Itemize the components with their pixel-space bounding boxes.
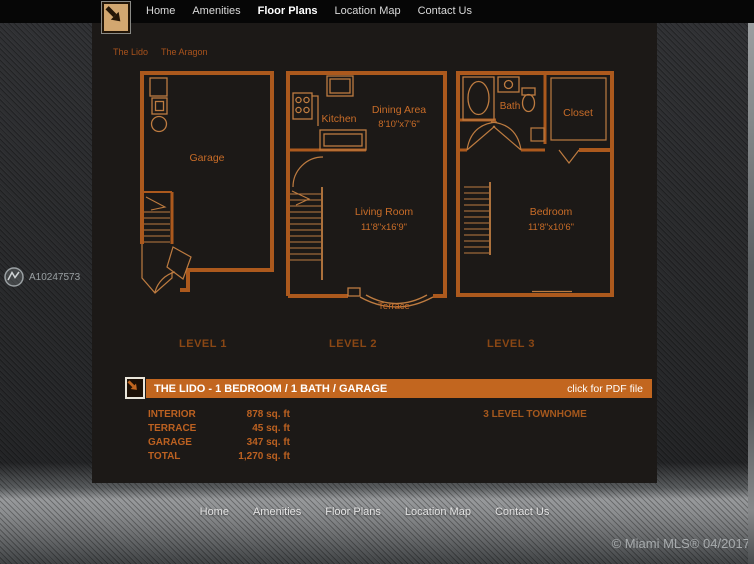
table-row: GARAGE 347 sq. ft bbox=[148, 435, 290, 449]
entry-door-icon bbox=[142, 244, 191, 293]
footer-nav-contact-us[interactable]: Contact Us bbox=[495, 506, 549, 518]
diagonal-arrow-logo-icon bbox=[104, 4, 124, 27]
top-navigation: Home Amenities Floor Plans Location Map … bbox=[146, 0, 472, 23]
garage-fixtures-icon bbox=[150, 78, 167, 132]
mls-watermark: A10247573 bbox=[3, 266, 80, 288]
top-nav-amenities[interactable]: Amenities bbox=[192, 0, 240, 23]
level3-caption: LEVEL 3 bbox=[478, 338, 544, 350]
stairs-level1-icon bbox=[144, 197, 170, 242]
mls-globe-icon bbox=[3, 266, 25, 288]
closet-room-label: Closet bbox=[563, 107, 593, 119]
floorplan-level1: Garage bbox=[125, 66, 285, 306]
table-row: TERRACE 45 sq. ft bbox=[148, 421, 290, 435]
subnav-the-lido[interactable]: The Lido bbox=[113, 47, 148, 57]
floorplan-level2: Kitchen Dining Area 8'10"x7'6" Living Ro… bbox=[281, 66, 451, 321]
hall-door-swings-icon bbox=[467, 122, 544, 150]
stat-value: 45 sq. ft bbox=[223, 423, 290, 434]
unit-title: THE LIDO - 1 BEDROOM / 1 BATH / GARAGE bbox=[154, 383, 387, 395]
door-arc-icon bbox=[293, 157, 323, 187]
living-dims-label: 11'8"x16'9" bbox=[361, 222, 407, 233]
stat-value: 347 sq. ft bbox=[223, 437, 290, 448]
stat-value: 878 sq. ft bbox=[223, 409, 290, 420]
garage-room-label: Garage bbox=[189, 152, 224, 164]
living-room-label: Living Room bbox=[355, 206, 414, 218]
footer-nav-floor-plans[interactable]: Floor Plans bbox=[325, 506, 381, 518]
scrollbar[interactable] bbox=[748, 23, 754, 564]
top-nav-contact-us[interactable]: Contact Us bbox=[418, 0, 472, 23]
bedroom-room-label: Bedroom bbox=[530, 206, 573, 218]
sqft-table: INTERIOR 878 sq. ft TERRACE 45 sq. ft GA… bbox=[148, 407, 290, 463]
table-row: TOTAL 1,270 sq. ft bbox=[148, 449, 290, 463]
bath-fixtures-icon bbox=[463, 77, 535, 120]
floorplan-subnav: The Lido The Aragon bbox=[113, 47, 208, 57]
stat-label: TOTAL bbox=[148, 451, 223, 462]
bedroom-dims-label: 11'8"x10'6" bbox=[528, 222, 574, 233]
subnav-the-aragon[interactable]: The Aragon bbox=[161, 47, 208, 57]
site-logo[interactable] bbox=[102, 2, 130, 33]
stairs-level3-icon bbox=[464, 182, 490, 255]
stairs-level2-icon bbox=[290, 187, 322, 280]
kitchen-room-label: Kitchen bbox=[321, 113, 356, 125]
townhome-type-label: 3 LEVEL TOWNHOME bbox=[470, 409, 600, 420]
stat-value: 1,270 sq. ft bbox=[223, 451, 290, 462]
footer-nav-amenities[interactable]: Amenities bbox=[253, 506, 301, 518]
floorplan-page: { "header": { "nav": [ {"label": "Home"}… bbox=[0, 0, 754, 564]
stat-label: TERRACE bbox=[148, 423, 223, 434]
footer-nav-location-map[interactable]: Location Map bbox=[405, 506, 471, 518]
stat-label: GARAGE bbox=[148, 437, 223, 448]
level2-caption: LEVEL 2 bbox=[320, 338, 386, 350]
terrace-label: Terrace bbox=[378, 301, 410, 312]
top-nav-location-map[interactable]: Location Map bbox=[335, 0, 401, 23]
footer-nav-home[interactable]: Home bbox=[200, 506, 229, 518]
copyright-label: © Miami MLS® 04/2017 bbox=[612, 536, 750, 551]
level1-caption: LEVEL 1 bbox=[170, 338, 236, 350]
pdf-banner-button[interactable]: THE LIDO - 1 BEDROOM / 1 BATH / GARAGE c… bbox=[146, 379, 652, 398]
table-row: INTERIOR 878 sq. ft bbox=[148, 407, 290, 421]
dining-room-label: Dining Area bbox=[372, 104, 426, 116]
bath-room-label: Bath bbox=[500, 101, 521, 112]
top-nav-floor-plans[interactable]: Floor Plans bbox=[258, 0, 318, 23]
dining-dims-label: 8'10"x7'6" bbox=[378, 119, 420, 130]
footer-navigation: Home Amenities Floor Plans Location Map … bbox=[92, 506, 657, 518]
pdf-link-label: click for PDF file bbox=[567, 383, 643, 395]
top-nav-home[interactable]: Home bbox=[146, 0, 175, 23]
mls-id-label: A10247573 bbox=[29, 272, 80, 283]
stat-label: INTERIOR bbox=[148, 409, 223, 420]
diagonal-arrow-logo-icon bbox=[127, 379, 139, 393]
banner-logo bbox=[125, 377, 145, 399]
floorplan-level3: Bath Closet Bedroom 11'8"x10'6" bbox=[451, 66, 621, 306]
